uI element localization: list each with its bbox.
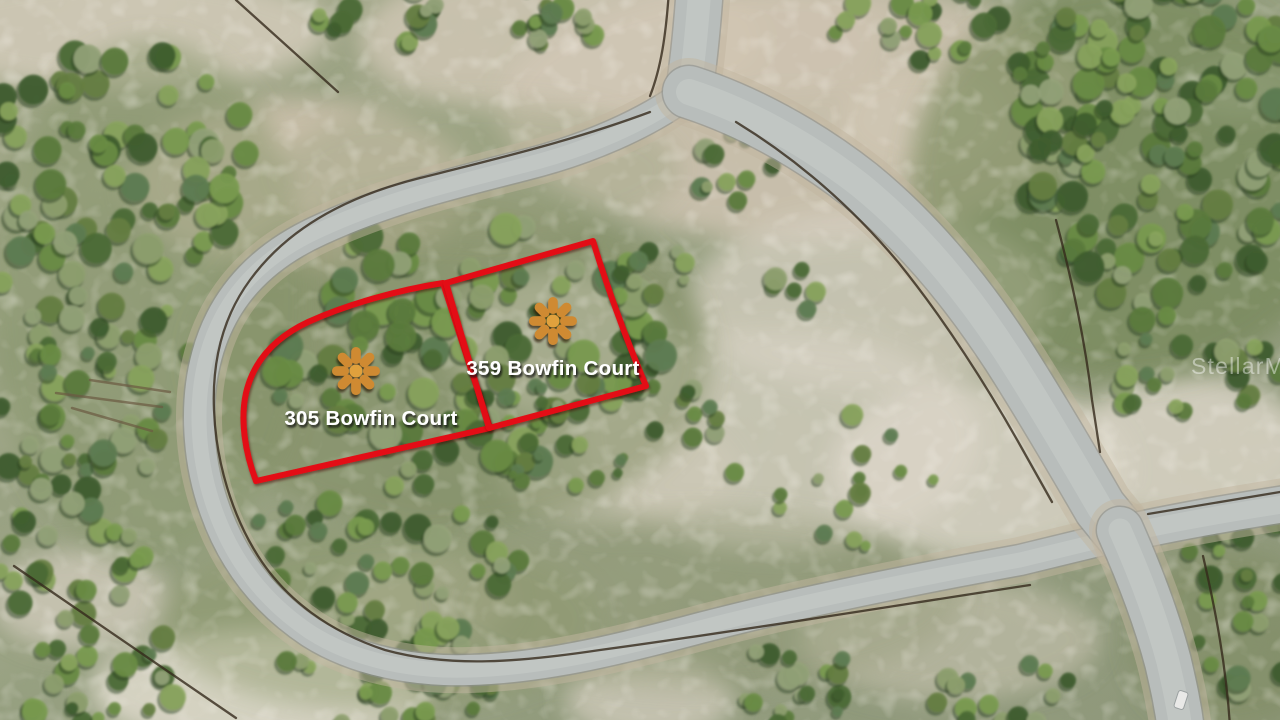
tree-canopy [1225,665,1250,690]
tree-canopy [358,519,375,536]
tree-canopy [408,377,439,408]
tree-canopy [89,134,107,152]
tree-canopy [979,695,998,714]
tree-canopy [1171,334,1193,356]
tree-canopy [1194,15,1226,47]
tree-canopy [928,474,938,484]
tree-canopy [470,284,494,308]
tree-canopy [30,478,52,500]
tree-canopy [59,305,84,330]
tree-canopy [61,654,78,671]
lot-label-359: 359 Bowfin Court [466,357,639,380]
tree-canopy [65,370,91,396]
tree-canopy [346,571,370,595]
tree-canopy [1147,378,1161,392]
tree-canopy [337,592,357,612]
tree-canopy [1181,235,1209,263]
tree-canopy [1129,307,1155,333]
tree-canopy [1247,207,1274,234]
tree-canopy [280,500,294,514]
tree-canopy [702,181,713,192]
tree-canopy [1141,174,1161,194]
tree-canopy [1090,19,1108,37]
tree-canopy [312,586,335,609]
tree-canopy [908,1,932,25]
tree-canopy [1110,99,1135,124]
aerial-lot-photo: 305 Bowfin Court 359 Bowfin Court Stella… [0,0,1280,720]
tree-canopy [309,364,327,382]
tree-canopy [1160,367,1174,381]
tree-canopy [420,4,432,16]
tree-canopy [481,440,513,472]
tree-canopy [676,253,695,272]
tree-canopy [519,433,538,452]
tree-canopy [799,686,815,702]
tree-canopy [1116,365,1138,387]
tree-canopy [1149,231,1164,246]
tree-canopy [81,233,112,264]
tree-canopy [159,204,175,220]
tree-canopy [1160,58,1178,76]
tree-canopy [80,625,100,645]
tree-canopy [128,133,157,162]
tree-canopy [679,274,689,284]
tree-canopy [947,676,965,694]
tree-canopy [842,404,864,426]
tree-canopy [1118,342,1131,355]
tree-canopy [227,102,252,127]
tree-canopy [744,693,762,711]
tree-canopy [1037,107,1063,133]
sun-marker-ray [332,366,349,376]
tree-canopy [749,644,764,659]
tree-canopy [850,482,871,503]
tree-canopy [349,310,379,340]
tree-canopy [310,522,327,539]
tree-canopy [74,44,103,73]
tree-canopy [1190,275,1207,292]
tree-canopy [1130,25,1145,40]
tree-canopy [414,474,434,494]
tree-canopy [613,468,623,478]
tree-canopy [1013,67,1027,81]
tree-canopy [853,472,865,484]
tree-canopy [332,538,347,553]
tree-canopy [534,450,545,461]
tree-canopy [1096,100,1113,117]
tree-canopy [972,12,997,37]
tree-canopy [0,102,18,120]
tree-canopy [159,85,179,105]
tree-canopy [1187,141,1203,157]
tree-canopy [1117,73,1136,92]
tree-canopy [1056,7,1076,27]
tree-canopy [97,352,116,371]
tree-canopy [77,645,98,666]
tree-canopy [1073,251,1104,282]
tree-canopy [63,453,76,466]
tree-canopy [1213,545,1225,557]
tree-canopy [386,321,416,351]
tree-canopy [861,541,871,551]
tree-canopy [285,515,306,536]
tree-canopy [26,562,48,584]
tree-canopy [764,267,787,290]
tree-canopy [277,651,297,671]
tree-canopy [1078,43,1103,68]
tree-canopy [163,128,190,155]
tree-canopy [374,561,392,579]
tree-canopy [8,590,33,615]
tree-canopy [45,674,64,693]
sun-marker-ray [363,366,380,376]
tree-canopy [327,22,342,37]
tree-canopy [59,82,76,99]
tree-canopy [1102,48,1120,66]
tree-canopy [35,642,50,657]
tree-canopy [196,203,221,228]
tree-canopy [107,218,131,242]
tree-canopy [289,393,304,408]
lot-label-305: 305 Bowfin Court [284,407,457,430]
tree-canopy [513,269,529,285]
tree-canopy [645,339,677,371]
tree-canopy [885,428,899,442]
tree-canopy [22,436,39,453]
tree-canopy [575,9,592,26]
tree-canopy [895,465,908,478]
tree-canopy [122,330,135,343]
tree-canopy [1246,250,1268,272]
tree-canopy [392,557,409,574]
tree-canopy [833,688,844,699]
tree-canopy [76,580,97,601]
tree-canopy [880,18,897,35]
tree-canopy [683,427,702,446]
tree-canopy [147,429,168,450]
tree-canopy [1242,596,1254,608]
tree-canopy [54,231,78,255]
tree-canopy [121,528,136,543]
tree-canopy [777,666,801,690]
tree-canopy [61,492,84,515]
sun-marker-ray [548,328,558,345]
tree-canopy [490,213,522,245]
tree-canopy [917,22,942,47]
tree-canopy [149,42,175,68]
tree-canopy [332,267,358,293]
tree-canopy [853,445,871,463]
tree-canopy [512,20,527,35]
tree-canopy [1165,146,1185,166]
tree-canopy [141,307,168,334]
tree-canopy [1029,138,1051,160]
tree-canopy [787,282,802,297]
tree-canopy [19,455,32,468]
tree-canopy [718,173,736,191]
tree-canopy [51,474,71,494]
tree-canopy [36,169,66,199]
tree-canopy [1164,98,1191,125]
sun-marker-359 [529,297,577,345]
tree-canopy [1038,663,1053,678]
tree-canopy [267,546,285,564]
tree-canopy [704,144,724,164]
tree-canopy [813,473,824,484]
tree-canopy [401,461,417,477]
tree-canopy [423,349,442,368]
tree-canopy [529,29,547,47]
tree-canopy [436,586,449,599]
tree-canopy [151,625,175,649]
tree-canopy [210,173,240,203]
tree-canopy [398,232,420,254]
tree-canopy [1079,214,1099,234]
tree-canopy [1204,656,1219,671]
tree-canopy [234,141,259,166]
tree-canopy [1233,611,1253,631]
tree-canopy [774,488,787,501]
tree-canopy [38,525,58,545]
sun-marker-center [547,315,560,328]
tree-canopy [1039,79,1064,104]
tree-canopy [1074,112,1097,135]
tree-canopy [199,74,215,90]
tree-canopy [454,505,471,522]
tree-canopy [1218,126,1236,144]
tree-canopy [359,686,372,699]
tree-canopy [3,534,20,551]
tree-canopy [57,610,74,627]
tree-canopy [66,702,78,714]
tree-canopy [498,388,516,406]
tree-canopy [1236,78,1257,99]
tree-canopy [486,516,499,529]
tree-canopy [1021,85,1041,105]
tree-canopy [61,435,74,448]
tree-canopy [1140,333,1152,345]
tree-canopy [136,343,162,369]
tree-canopy [567,260,586,279]
tree-canopy [589,470,604,485]
tree-canopy [614,265,630,281]
sun-marker-305 [332,347,380,395]
tree-canopy [806,282,826,302]
tree-canopy [572,437,588,453]
tree-canopy [629,251,648,270]
tree-canopy [467,702,480,715]
tree-canopy [687,407,702,422]
tree-canopy [1217,262,1233,278]
tree-canopy [1124,394,1141,411]
tree-canopy [6,236,35,265]
tree-canopy [1241,569,1253,581]
tree-canopy [19,75,49,105]
tree-canopy [69,286,88,305]
tree-canopy [1060,672,1076,688]
tree-canopy [846,531,862,547]
sun-marker-ray [560,316,577,326]
tree-canopy [90,439,117,466]
aerial-photo-canvas: 305 Bowfin Court 359 Bowfin Court Stella… [0,0,1280,720]
tree-canopy [40,405,60,425]
tree-canopy [900,25,912,37]
tree-canopy [14,510,37,533]
sun-marker-ray [351,378,361,395]
tree-canopy [99,293,126,320]
tree-canopy [1169,399,1184,414]
tree-canopy [385,476,404,495]
tree-canopy [273,388,287,402]
tree-canopy [160,684,186,710]
tree-canopy [317,490,342,515]
tree-canopy [471,563,486,578]
tree-canopy [380,384,396,400]
tree-canopy [101,48,128,75]
tree-canopy [115,262,134,281]
tree-canopy [114,557,130,573]
tree-canopy [643,284,664,305]
tree-canopy [25,308,41,324]
tree-canopy [365,600,385,620]
watermark-stellar-mls: StellarMLS [1191,353,1280,379]
tree-canopy [782,650,797,665]
sun-marker-ray [529,316,546,326]
tree-canopy [360,554,375,569]
tree-canopy [536,396,548,408]
tree-canopy [411,562,434,585]
tree-canopy [68,121,86,139]
tree-canopy [111,585,130,604]
tree-canopy [1046,688,1061,703]
tree-canopy [41,364,57,380]
tree-canopy [816,525,833,542]
sun-marker-ray [351,347,361,364]
tree-canopy [726,463,744,481]
tree-canopy [262,356,292,386]
tree-canopy [729,191,748,210]
tree-canopy [130,551,146,567]
tree-canopy [1029,172,1057,200]
tree-canopy [34,136,62,164]
tree-canopy [1057,181,1088,212]
tree-canopy [832,706,842,716]
tree-canopy [143,703,156,716]
tree-canopy [837,11,855,29]
tree-canopy [615,454,626,465]
tree-canopy [104,165,126,187]
tree-canopy [738,170,755,187]
tree-canopy [113,652,138,677]
tree-canopy [1177,204,1194,221]
tree-canopy [1036,42,1050,56]
tree-canopy [1153,278,1184,309]
tree-canopy [569,478,584,493]
tree-canopy [1108,215,1128,235]
tree-canopy [19,210,38,229]
tree-canopy [1195,80,1217,102]
tree-canopy [155,671,170,686]
tree-canopy [424,524,452,552]
tree-canopy [389,298,416,325]
tree-canopy [139,458,155,474]
tree-canopy [646,421,663,438]
tree-canopy [183,175,210,202]
tree-canopy [509,470,518,479]
tree-canopy [304,562,316,574]
tree-canopy [681,385,695,399]
tree-canopy [363,249,395,281]
tree-canopy [253,514,266,527]
tree-canopy [49,640,67,658]
tree-canopy [313,8,327,22]
tree-canopy [536,382,547,393]
tree-canopy [794,262,809,277]
tree-canopy [1158,307,1176,325]
tree-canopy [959,41,972,54]
tree-canopy [835,651,851,667]
tree-canopy [437,617,460,640]
tree-canopy [1114,266,1132,284]
tree-canopy [1021,655,1039,673]
tree-canopy [799,300,817,318]
tree-canopy [1221,52,1248,79]
tree-canopy [703,400,718,415]
tree-canopy [541,2,562,23]
tree-canopy [40,344,61,365]
tree-canopy [108,702,121,715]
sun-marker-ray [548,297,558,314]
tree-canopy [532,419,542,429]
tree-canopy [1091,132,1106,147]
tree-canopy [1236,393,1251,408]
tree-canopy [381,512,402,533]
tree-canopy [82,347,95,360]
tree-canopy [1158,249,1181,272]
sun-marker-center [350,365,363,378]
tree-canopy [494,557,510,573]
tree-canopy [133,233,164,264]
tree-canopy [928,692,948,712]
